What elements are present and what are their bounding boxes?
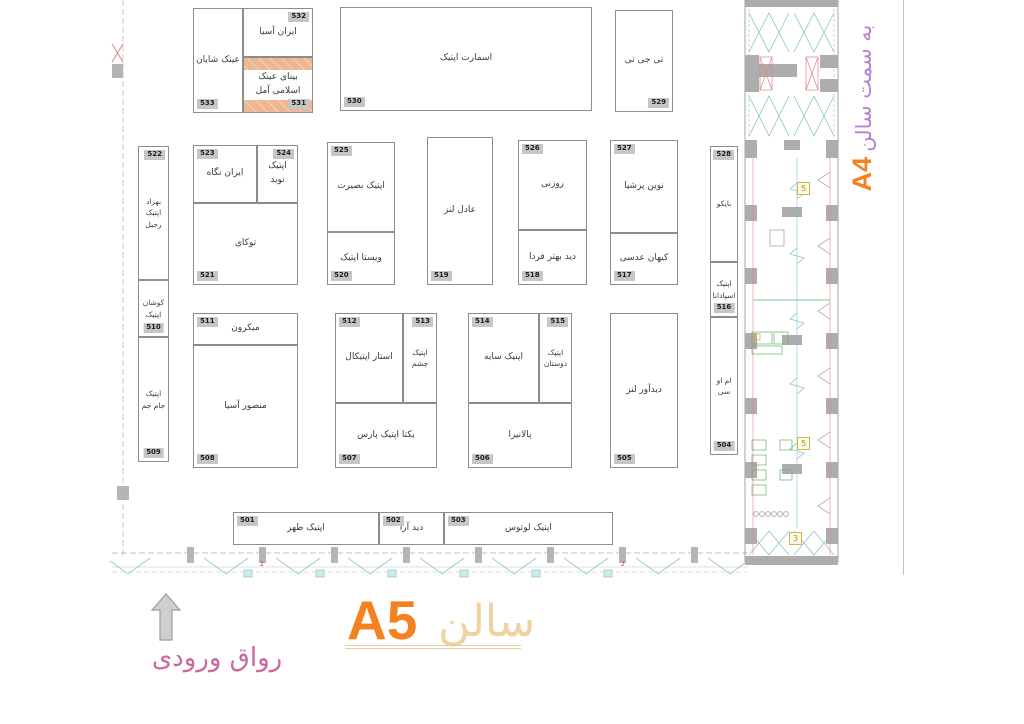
booth-label: ام او سی (711, 375, 737, 398)
booth-number: 531 (288, 99, 309, 109)
booth-number: 530 (344, 97, 365, 107)
booth-number: 518 (522, 271, 543, 281)
booth-number: 521 (197, 271, 218, 281)
booth-508[interactable]: 508 منصور آسیا (193, 345, 298, 468)
booth-514[interactable]: 514 اپتیک سایه (468, 313, 539, 403)
booth-label: عادل لنز (442, 204, 478, 218)
booth-label: اپتیک لوتوس (503, 522, 554, 536)
booth-523[interactable]: 523 ایران نگاه (193, 145, 257, 203)
booth-label: توکای (233, 237, 258, 251)
booth-label: روزنی (539, 178, 566, 192)
booth-513[interactable]: 513 اپتیک چشم (403, 313, 437, 403)
booth-number: 504 (714, 441, 735, 451)
corridor-badge: 5 (797, 182, 810, 195)
booth-530[interactable]: 530 اسمارت اپتیک (340, 7, 592, 111)
booth-515[interactable]: 515 اپتیک دوستان (539, 313, 572, 403)
wall-mark: 2 (260, 562, 264, 568)
booth-label: استار اپتیکال (343, 351, 394, 365)
booth-506[interactable]: 506 پالانیرا (468, 403, 572, 468)
booth-525[interactable]: 525 اپتیک بصیرت (327, 142, 395, 232)
booth-521[interactable]: 521 توکای (193, 203, 298, 285)
booth-label: بینای عینک اسلامی آمل (244, 70, 312, 100)
left-boundary-wall (104, 0, 134, 566)
corridor-plan (740, 0, 908, 590)
booth-531[interactable]: 531 بینای عینک اسلامی آمل (243, 57, 313, 113)
booth-510[interactable]: 510 کوشان اپتیک (138, 280, 169, 337)
booth-label: دیدآور لنز (624, 384, 664, 398)
booth-517[interactable]: 517 کیهان عدسی (610, 233, 678, 285)
wall-mark: 2 (621, 562, 625, 568)
booth-528[interactable]: 528 بایکو (710, 146, 738, 262)
booth-label: اپتیک بصیرت (335, 180, 387, 194)
booth-524[interactable]: 524 اپتیک نوید (257, 145, 298, 203)
booth-number: 510 (143, 323, 164, 333)
entrance-label: رواق ورودی (132, 643, 302, 673)
booth-507[interactable]: 507 یکتا اپتیک پارس (335, 403, 437, 468)
hall-title-persian: سالن (438, 596, 535, 647)
booth-518[interactable]: 518 دید بهتر فردا (518, 230, 587, 285)
booth-number: 523 (197, 149, 218, 159)
booth-label: ویستا اپتیک (338, 252, 384, 266)
booth-511[interactable]: 511 میکرون (193, 313, 298, 345)
booth-number: 502 (383, 516, 404, 526)
hall-title-underline (345, 645, 521, 649)
booth-number: 515 (547, 317, 568, 327)
booth-label: تی جی تی (623, 54, 666, 68)
booth-529[interactable]: 529 تی جی تی (615, 10, 673, 112)
corridor-badge: 3 (789, 532, 802, 545)
booth-number: 524 (273, 149, 294, 159)
booth-520[interactable]: 520 ویستا اپتیک (327, 232, 395, 285)
hall-title-latin: A5 (347, 588, 417, 652)
booth-503[interactable]: 503 اپتیک لوتوس (444, 512, 613, 545)
booth-label: اپتیک نوید (258, 160, 297, 188)
booth-number: 533 (197, 99, 218, 109)
booth-number: 505 (614, 454, 635, 464)
corridor-badge: 5 (797, 437, 810, 450)
booth-number: 516 (714, 303, 735, 313)
booth-522[interactable]: 522 بهزاد اپتیک رجبل (138, 146, 169, 280)
booth-number: 520 (331, 271, 352, 281)
booth-label: اپتیک اسپادانا (711, 278, 738, 301)
booth-label: اسمارت اپتیک (438, 52, 494, 66)
booth-label: منصور آسیا (222, 400, 269, 414)
direction-hall-code: A4 (847, 157, 877, 192)
booth-label: عینک شایان (194, 54, 242, 68)
booth-504[interactable]: 504 ام او سی (710, 317, 738, 455)
booth-516[interactable]: 516 اپتیک اسپادانا (710, 262, 738, 317)
booth-533[interactable]: 533 عینک شایان (193, 8, 243, 113)
booth-number: 508 (197, 454, 218, 464)
booth-502[interactable]: 502 دید آرا (379, 512, 444, 545)
booth-519[interactable]: 519 عادل لنز (427, 137, 493, 285)
booth-number: 522 (144, 150, 165, 160)
booth-512[interactable]: 512 استار اپتیکال (335, 313, 403, 403)
hall-floor-plan: 5 5 3 2 2 533 عینک شایان 532 ایران آسیا … (0, 0, 1024, 724)
booth-number: 525 (331, 146, 352, 156)
booth-number: 532 (288, 12, 309, 22)
bottom-perimeter-wall (110, 546, 750, 586)
booth-number: 509 (143, 448, 164, 458)
booth-label: میکرون (229, 322, 261, 336)
booth-label: کوشان اپتیک (139, 297, 168, 320)
booth-label: اپتیک جام جم (139, 388, 168, 411)
booth-505[interactable]: 505 دیدآور لنز (610, 313, 678, 468)
booth-label: نوین پرشیا (622, 180, 666, 194)
booth-label: اپتیک چشم (404, 347, 436, 370)
booth-label: یکتا اپتیک پارس (355, 429, 417, 443)
booth-number: 514 (472, 317, 493, 327)
booth-509[interactable]: 509 اپتیک جام جم (138, 337, 169, 462)
booth-label: بهزاد اپتیک رجبل (139, 196, 168, 230)
booth-label: پالانیرا (506, 429, 533, 443)
booth-number: 513 (412, 317, 433, 327)
booth-label: کیهان عدسی (618, 252, 671, 266)
booth-number: 506 (472, 454, 493, 464)
booth-label: اپتیک سایه (482, 351, 525, 365)
booth-532[interactable]: 532 ایران آسیا (243, 8, 313, 57)
booth-number: 512 (339, 317, 360, 327)
direction-note: به سمت سالن A4 (847, 13, 877, 213)
booth-number: 501 (237, 516, 258, 526)
booth-501[interactable]: 501 اپتیک طهر (233, 512, 379, 545)
booth-label: بایکو (715, 198, 733, 209)
booth-526[interactable]: 526 روزنی (518, 140, 587, 230)
booth-number: 507 (339, 454, 360, 464)
direction-text: به سمت سالن (852, 25, 876, 152)
booth-number: 527 (614, 144, 635, 154)
booth-number: 503 (448, 516, 469, 526)
booth-number: 526 (522, 144, 543, 154)
booth-number: 511 (197, 317, 218, 327)
booth-number: 519 (431, 271, 452, 281)
booth-label: ایران نگاه (205, 167, 246, 181)
booth-label: دید بهتر فردا (527, 251, 578, 265)
booth-number: 517 (614, 271, 635, 281)
booth-label: اپتیک دوستان (540, 347, 571, 370)
booth-label: ایران آسیا (257, 26, 298, 40)
booth-527[interactable]: 527 نوین پرشیا (610, 140, 678, 233)
entrance-arrow-icon (150, 593, 182, 641)
booth-label: اپتیک طهر (285, 522, 327, 536)
booth-number: 528 (713, 150, 734, 160)
booth-number: 529 (648, 98, 669, 108)
